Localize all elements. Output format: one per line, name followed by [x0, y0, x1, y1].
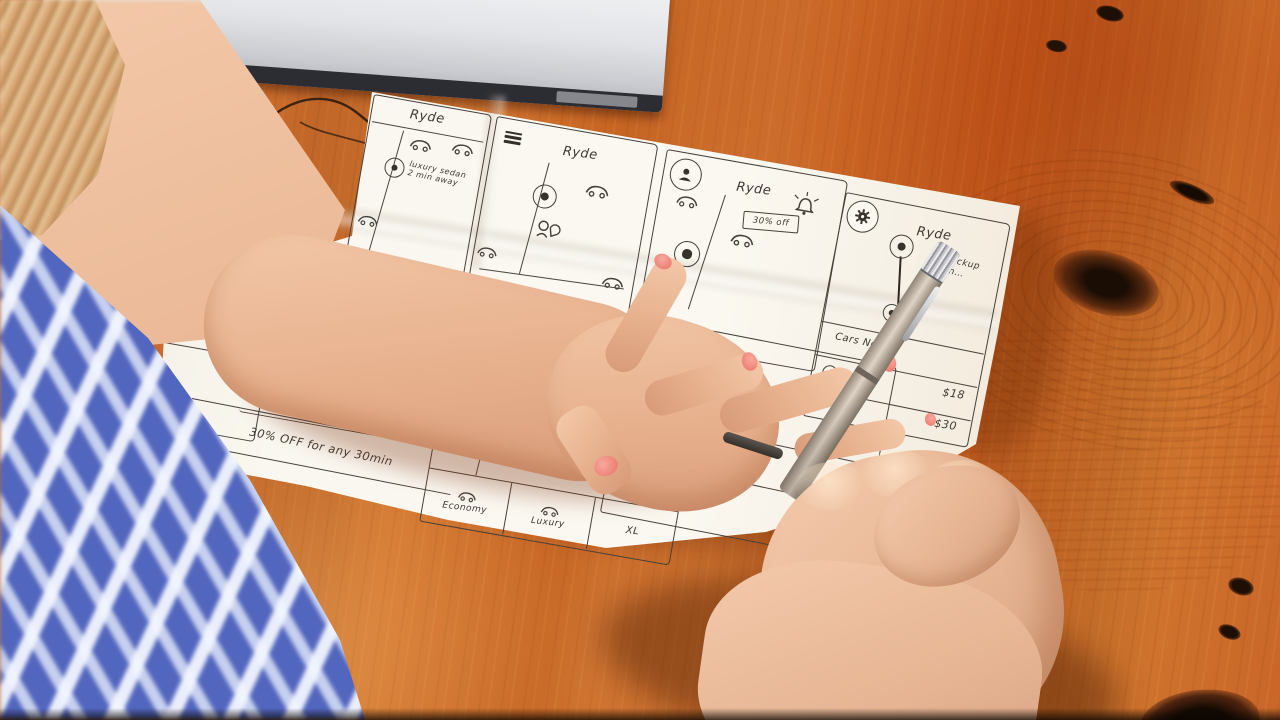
app-title: Ryde [736, 180, 773, 199]
car-icon [475, 244, 499, 261]
profile-icon [667, 156, 704, 193]
promo-badge-label: 30% off [752, 216, 789, 229]
location-pin-icon [531, 183, 559, 211]
photo-scene: Ryde luxury sedan 2 min away Ryde Ryde 3… [0, 0, 1280, 720]
tab-economy-label: Economy [442, 500, 488, 515]
car-icon [539, 503, 561, 518]
frame-bottom-fade [0, 708, 1280, 720]
car-icon [456, 488, 478, 503]
pin-note: luxury sedan 2 min away [407, 159, 471, 190]
app-title: Ryde [916, 224, 953, 244]
hamburger-icon [503, 128, 523, 148]
tab-luxury-label: Luxury [531, 515, 566, 529]
car-icon [583, 181, 611, 200]
car-icon [408, 136, 434, 154]
price-row: $30 [933, 417, 957, 433]
person-icon [534, 217, 563, 241]
car-icon [450, 140, 476, 158]
car-icon [600, 274, 626, 292]
car-icon [356, 212, 380, 229]
price-row: $18 [941, 385, 965, 401]
knuckle [796, 462, 868, 510]
app-title: Ryde [409, 107, 446, 127]
car-icon [728, 230, 756, 249]
promo-badge: 30% off [742, 211, 799, 234]
location-pin-icon [383, 156, 406, 179]
pen-ring [854, 366, 879, 385]
tab-xl-label: XL [625, 524, 640, 537]
app-title: Ryde [562, 144, 599, 163]
gear-icon [844, 198, 882, 236]
car-icon [674, 192, 700, 210]
